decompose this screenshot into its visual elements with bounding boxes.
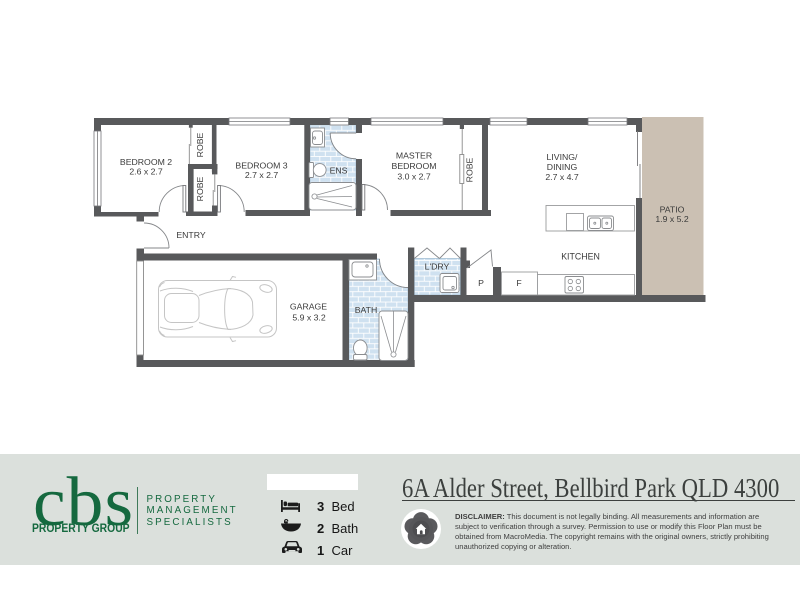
svg-text:MASTER: MASTER xyxy=(396,151,432,161)
svg-text:KITCHEN: KITCHEN xyxy=(561,252,600,262)
svg-text:3.0 x 2.7: 3.0 x 2.7 xyxy=(397,172,430,182)
svg-text:BEDROOM: BEDROOM xyxy=(392,161,437,171)
svg-text:BEDROOM 2: BEDROOM 2 xyxy=(120,157,172,167)
svg-text:ROBE: ROBE xyxy=(195,132,205,157)
svg-text:GARAGE: GARAGE xyxy=(290,302,327,312)
svg-text:P: P xyxy=(478,278,484,288)
svg-text:F: F xyxy=(516,278,521,288)
svg-text:ENTRY: ENTRY xyxy=(176,230,205,240)
svg-text:BATH: BATH xyxy=(355,305,378,315)
svg-text:ENS: ENS xyxy=(330,166,348,176)
svg-text:5.9 x 3.2: 5.9 x 3.2 xyxy=(292,313,325,323)
svg-text:DINING: DINING xyxy=(547,162,578,172)
svg-text:1.9 x 5.2: 1.9 x 5.2 xyxy=(655,214,688,224)
svg-text:BEDROOM 3: BEDROOM 3 xyxy=(235,161,287,171)
svg-text:LIVING/: LIVING/ xyxy=(547,152,578,162)
svg-text:L'DRY: L'DRY xyxy=(425,262,450,272)
svg-text:ROBE: ROBE xyxy=(465,157,475,182)
svg-text:2.7 x 4.7: 2.7 x 4.7 xyxy=(545,172,578,182)
svg-text:PATIO: PATIO xyxy=(660,205,685,215)
svg-text:2.7 x 2.7: 2.7 x 2.7 xyxy=(245,170,278,180)
svg-text:2.6 x 2.7: 2.6 x 2.7 xyxy=(129,167,162,177)
svg-text:ROBE: ROBE xyxy=(195,176,205,201)
